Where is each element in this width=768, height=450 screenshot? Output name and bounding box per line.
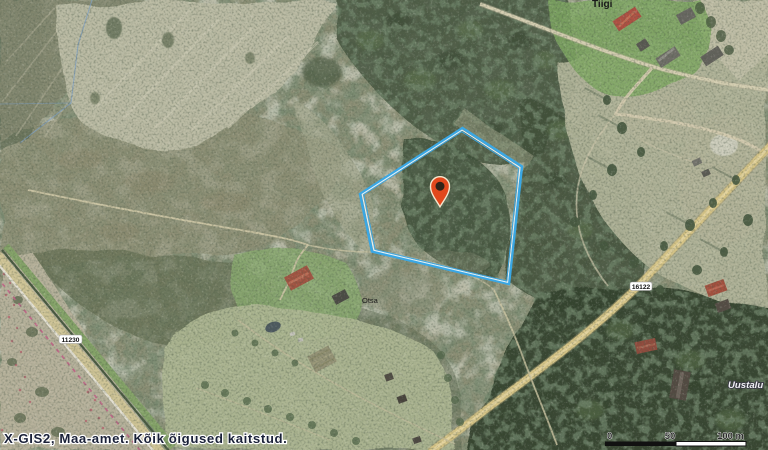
svg-text:Tiigi: Tiigi <box>592 0 613 10</box>
svg-text:11230: 11230 <box>62 337 80 344</box>
svg-text:50: 50 <box>665 431 676 442</box>
svg-text:X-GIS2, Maa-amet. Kõik õigused: X-GIS2, Maa-amet. Kõik õigused kaitstud. <box>4 431 287 446</box>
svg-text:16122: 16122 <box>632 284 651 291</box>
svg-text:Otsa: Otsa <box>362 296 379 305</box>
svg-text:100 m: 100 m <box>717 431 744 442</box>
svg-text:Uustalu: Uustalu <box>728 380 763 391</box>
svg-text:0: 0 <box>607 431 612 442</box>
